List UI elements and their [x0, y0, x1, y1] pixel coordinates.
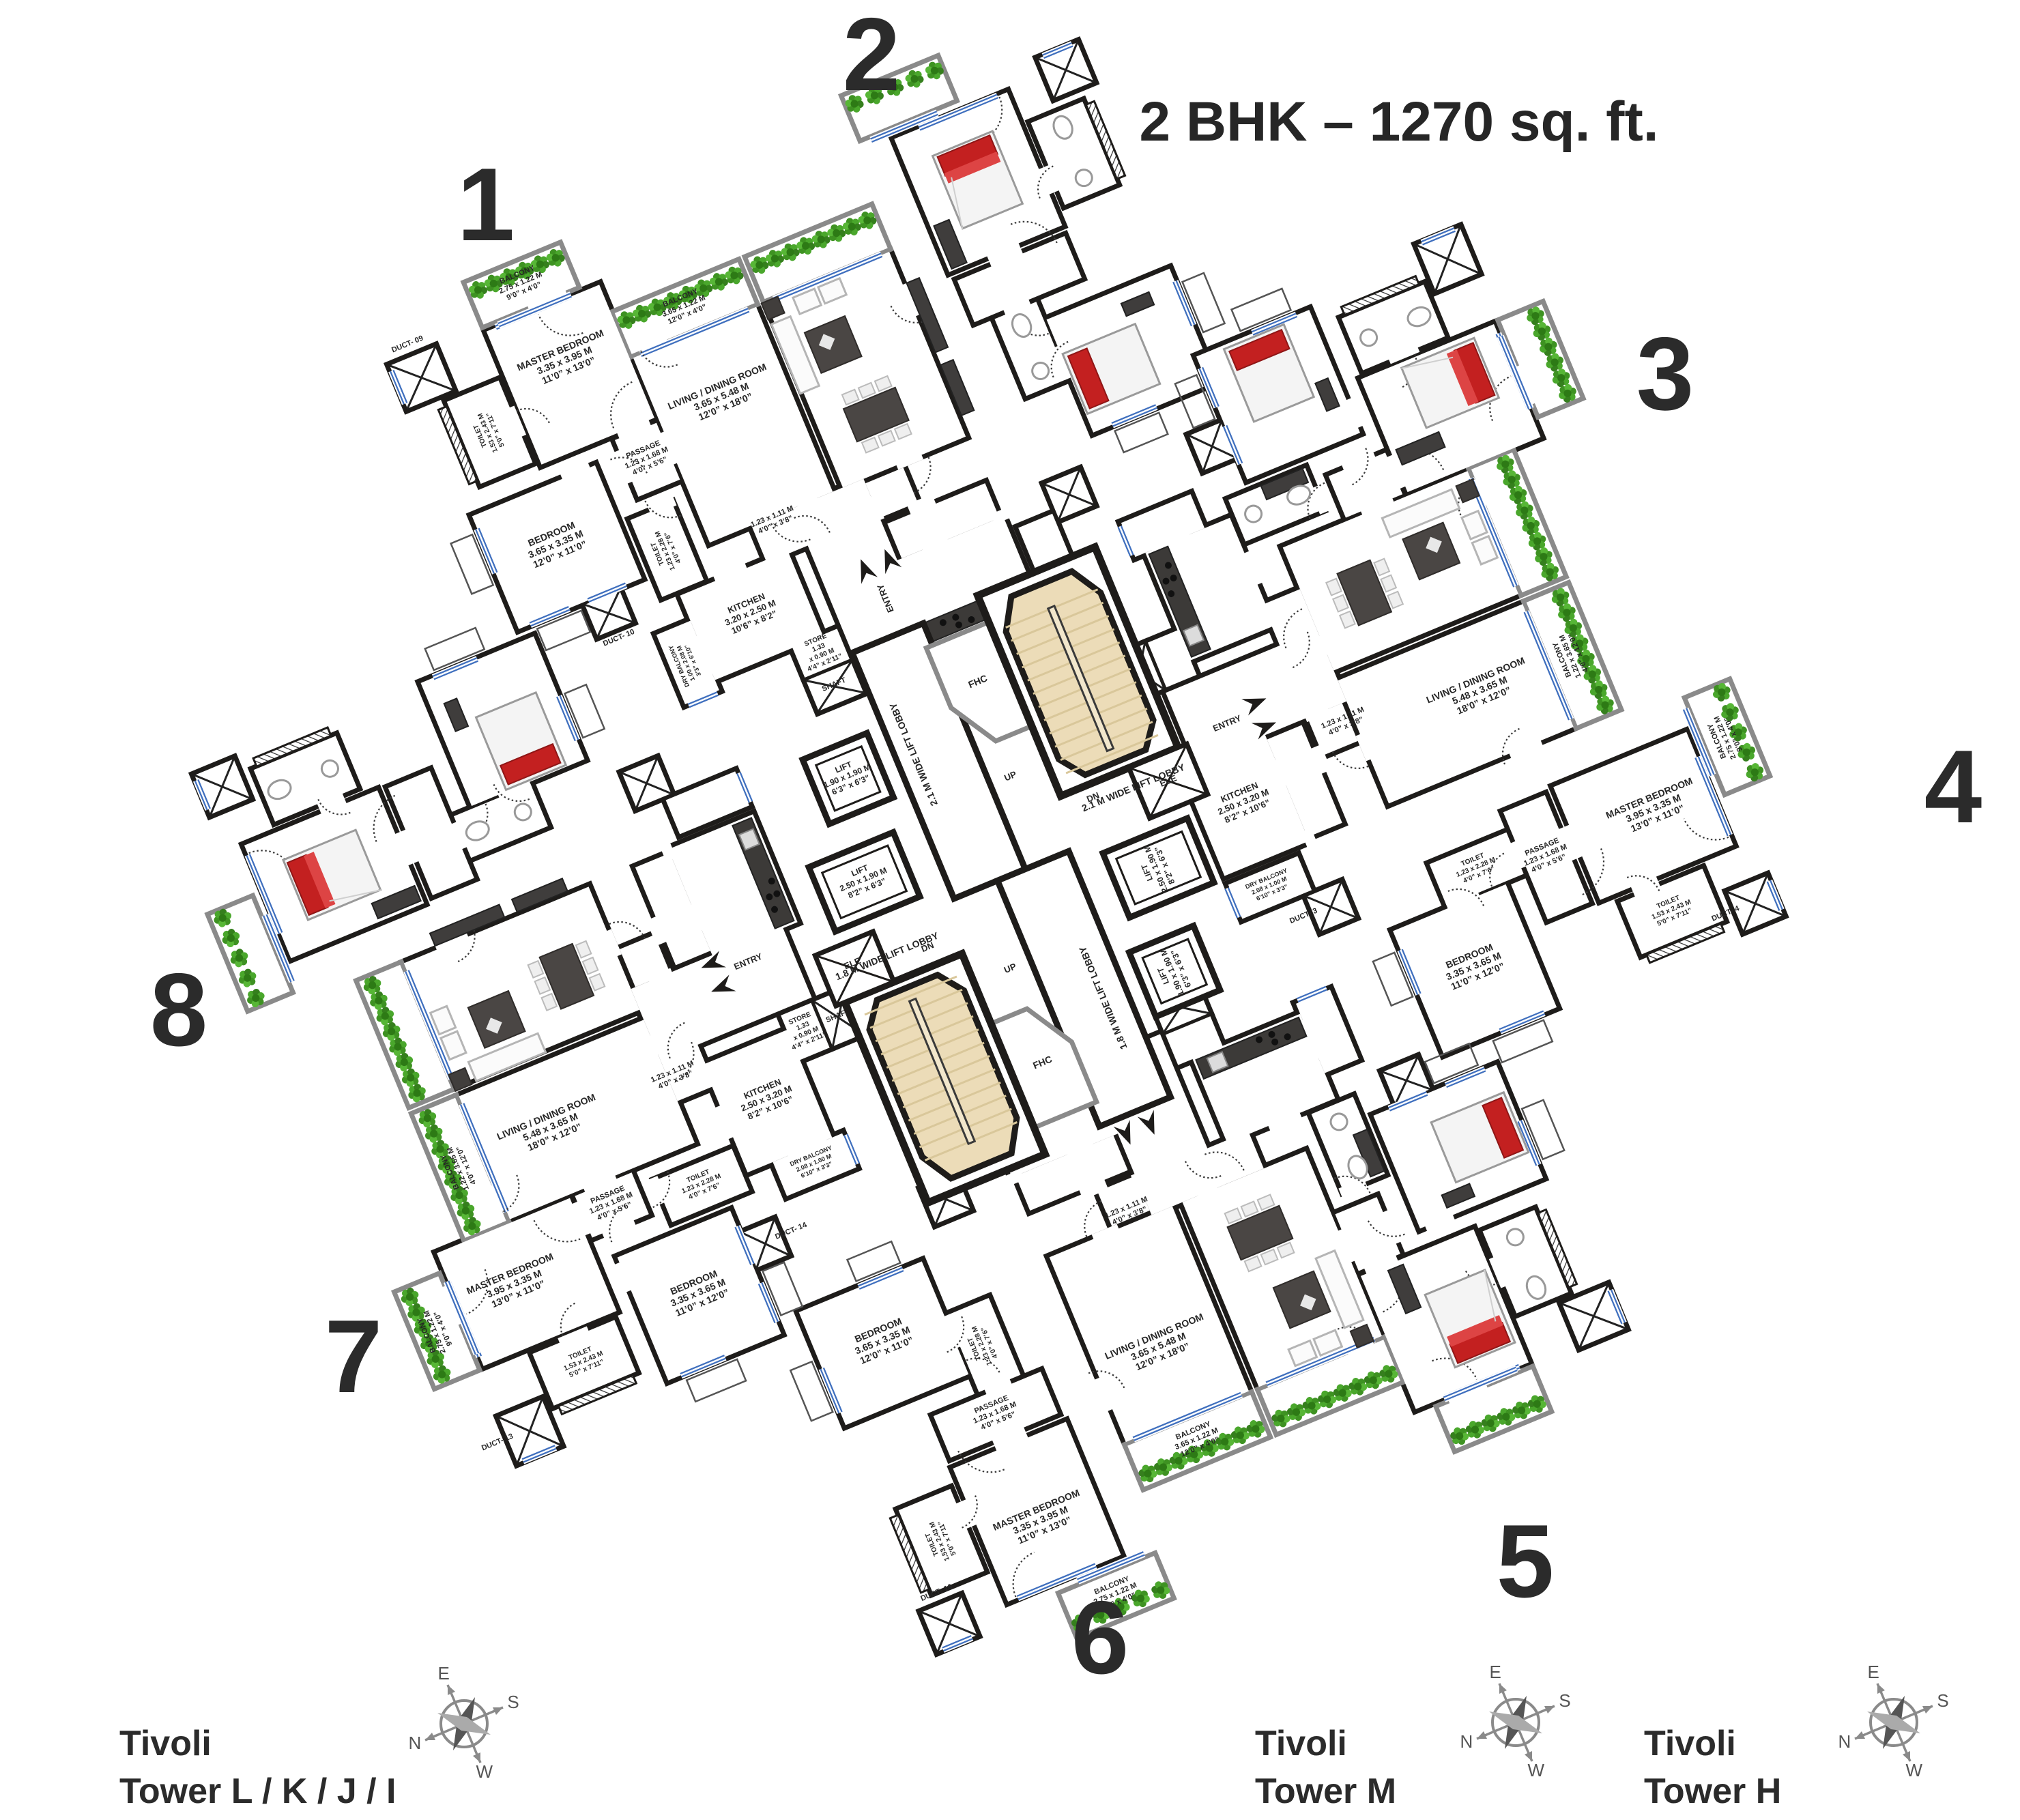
svg-text:1: 1 [457, 147, 515, 263]
svg-text:Tower M: Tower M [1255, 1772, 1396, 1811]
svg-text:Tivoli: Tivoli [1644, 1724, 1736, 1763]
svg-text:Tower L / K / J / I: Tower L / K / J / I [119, 1772, 396, 1811]
svg-text:5: 5 [1497, 1503, 1555, 1619]
svg-text:N: N [1838, 1731, 1851, 1752]
svg-text:4: 4 [1924, 729, 1982, 845]
svg-text:S: S [1559, 1690, 1570, 1711]
svg-text:W: W [1906, 1760, 1923, 1780]
svg-text:3: 3 [1636, 316, 1694, 432]
svg-text:6: 6 [1071, 1580, 1129, 1696]
svg-text:E: E [1868, 1662, 1879, 1682]
svg-text:Tivoli: Tivoli [1255, 1724, 1347, 1763]
svg-text:2 BHK – 1270 sq. ft.: 2 BHK – 1270 sq. ft. [1139, 91, 1658, 153]
svg-text:E: E [438, 1663, 450, 1684]
svg-text:S: S [1937, 1690, 1948, 1711]
svg-text:Tower H: Tower H [1644, 1772, 1781, 1811]
svg-text:2: 2 [843, 0, 901, 113]
svg-text:W: W [1528, 1760, 1545, 1780]
svg-text:8: 8 [150, 952, 208, 1068]
svg-text:S: S [507, 1692, 519, 1712]
svg-text:7: 7 [325, 1299, 383, 1415]
svg-text:N: N [409, 1733, 422, 1753]
svg-text:Tivoli: Tivoli [119, 1724, 212, 1763]
svg-text:N: N [1460, 1731, 1473, 1752]
svg-text:E: E [1490, 1662, 1501, 1682]
svg-text:W: W [476, 1761, 493, 1782]
